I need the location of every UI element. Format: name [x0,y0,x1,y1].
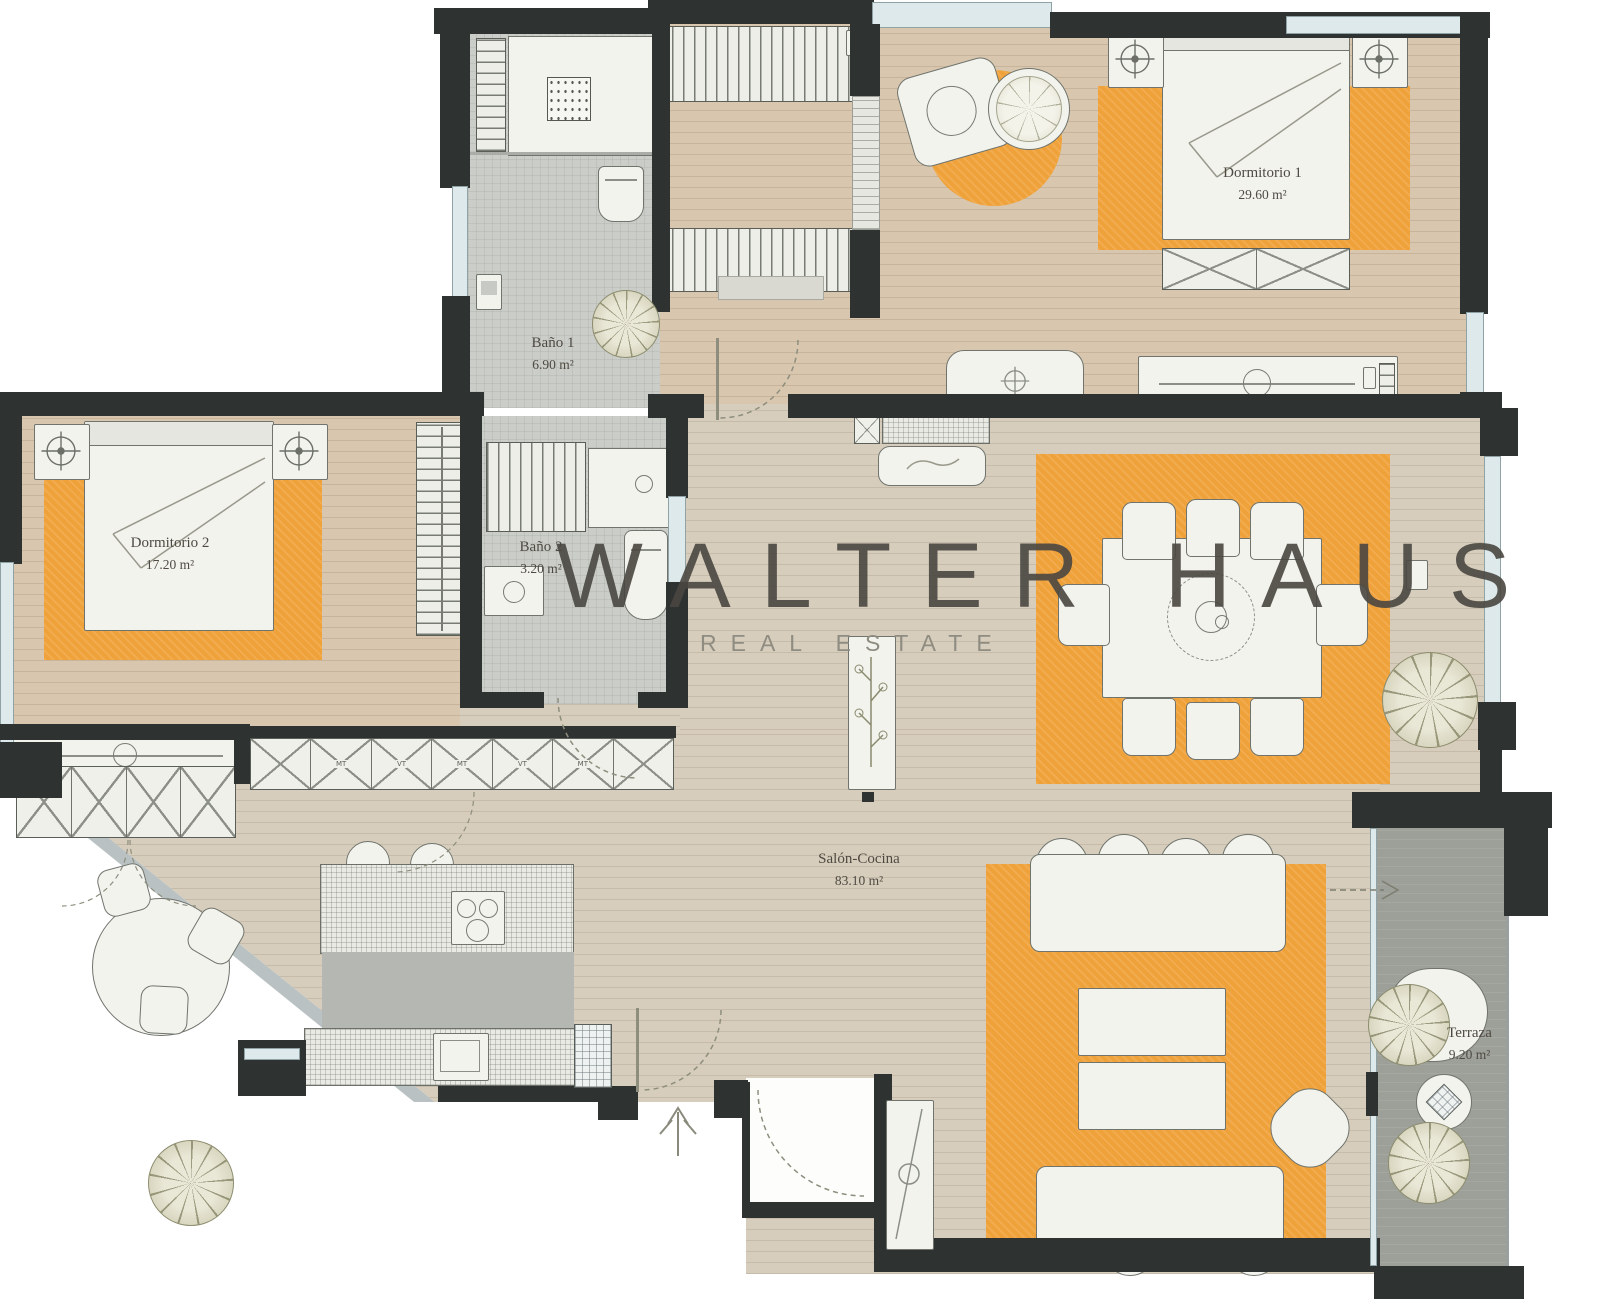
terrace-entry-arrow-icon [1328,878,1402,902]
cabinet-swing-arc [128,838,198,908]
window [872,2,1052,28]
shower-tray [588,448,670,528]
shower-drain-icon [635,475,653,493]
wardrobe-top [660,26,872,102]
kitchen-island [320,864,574,954]
plant-icon [148,1140,234,1226]
toilet [598,166,644,222]
window [452,186,468,298]
floor-divider [470,152,660,155]
room-label-bano1: Baño 16.90 m² [488,332,618,375]
chair [139,985,189,1035]
door-swing-arc [756,1088,866,1198]
room-label-dormitorio1: Dormitorio 129.60 m² [1175,162,1350,205]
duvet-fold [85,422,270,602]
coffee-table [1078,1062,1226,1130]
sink [433,1033,489,1081]
lamp-icon [1109,33,1161,85]
shower-bench [476,38,506,152]
nightstand [1352,32,1408,88]
window [0,562,14,744]
mirror-icon [1243,369,1271,397]
nightstand [1108,32,1164,88]
nightstand [272,424,328,480]
room-label-salon-cocina: Salón-Cocina83.10 m² [784,848,934,891]
glass-block-window [574,1024,612,1088]
bed-bench [1162,248,1350,290]
tv-sideboard [886,1100,934,1250]
floor-socket [862,792,874,802]
entry-door-swing-arc [639,1008,723,1092]
door-swing-arc [556,696,640,780]
plant-icon [1382,652,1478,748]
shower-drain-icon [547,77,591,121]
mirror-icon [113,743,137,767]
door-swing-arc [718,338,800,420]
shelf-strip [852,96,880,230]
coffee-table [1078,988,1226,1056]
cabinet-swing-arc [392,790,476,874]
shower-tray [508,36,654,156]
watermark-brand: WALTER HAUS [556,524,1540,629]
cooktop [451,891,505,945]
window [1286,16,1462,34]
hall-pouf [878,446,986,486]
terrace-railing [1506,916,1509,1266]
hall-bench [882,416,990,444]
lamp-icon [1353,33,1405,85]
phone-icon [1363,367,1376,389]
window [244,1048,300,1060]
bed [84,421,274,631]
decor-branch-icon [849,637,893,787]
room-label-dormitorio2: Dormitorio 217.20 m² [90,532,250,575]
nightstand [34,424,90,480]
chair [1122,698,1176,756]
room-label-terraza: Terraza9.20 m² [1412,1022,1527,1065]
plant-icon [1388,1122,1470,1204]
bed [1162,26,1350,240]
lamp-icon [273,425,325,477]
chair [1186,702,1240,760]
kitchen-lower-counter [304,1028,604,1086]
chair [1250,698,1304,756]
lamp-icon [35,425,87,477]
outside-area [0,1102,746,1299]
plant-icon [996,76,1062,142]
cabinet-swing-arc [60,838,130,908]
sofa [1030,854,1286,952]
console-table [848,636,896,790]
floorplan: MT VT MT VT MT [0,0,1600,1299]
watermark-tagline: REAL ESTATE [700,630,1006,657]
entrance-arrow-icon [652,1094,704,1160]
entry-bench [718,276,824,300]
towel-hook-icon [476,274,502,310]
kitchen-counter [322,952,574,1032]
window [1466,312,1484,394]
hall-cabinet [854,416,880,444]
tray-icon [1426,1084,1463,1121]
shower-screen [486,442,586,532]
